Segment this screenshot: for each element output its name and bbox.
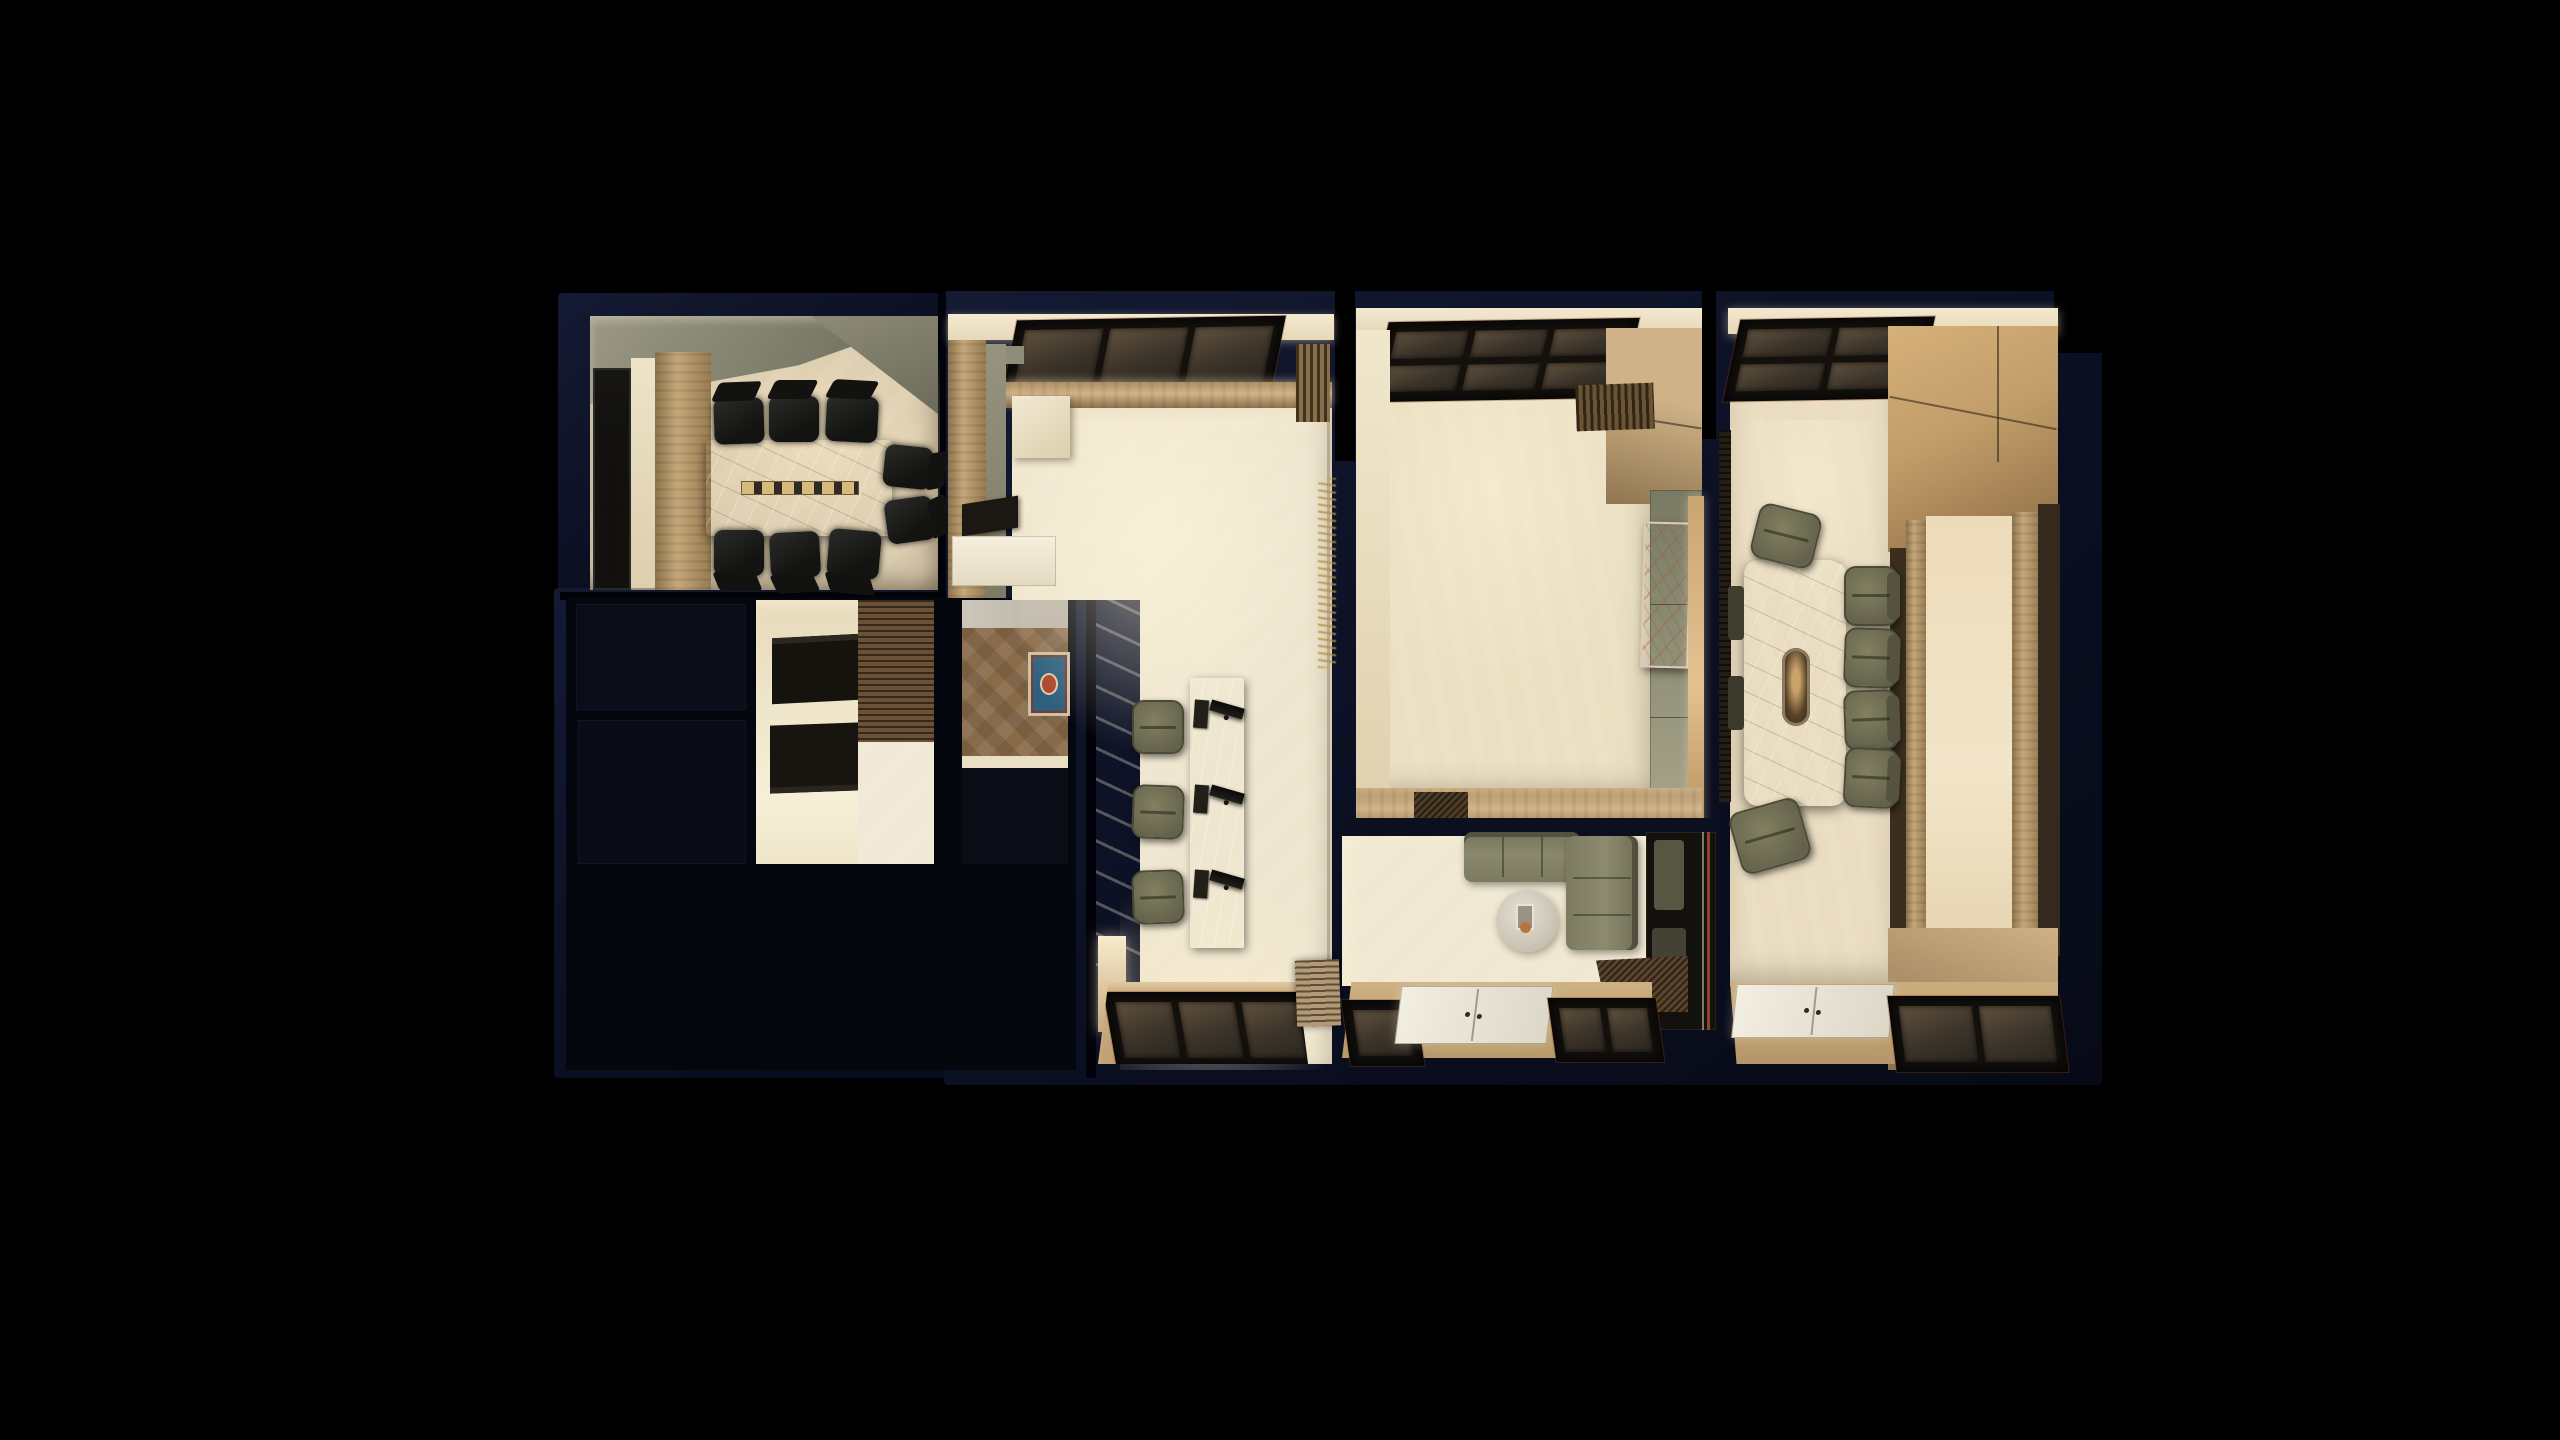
prayer-rug bbox=[1028, 652, 1070, 716]
executive-table bbox=[1744, 560, 1846, 806]
skylight-pane bbox=[1742, 328, 1832, 357]
office-chair bbox=[825, 395, 879, 444]
skylight-executive-south bbox=[1890, 998, 2067, 1070]
task-chair-partial bbox=[1728, 586, 1744, 640]
office-chair bbox=[714, 530, 764, 576]
unlit-room-a bbox=[576, 604, 746, 710]
slatted-screen bbox=[858, 600, 934, 742]
slatted-bench bbox=[1414, 792, 1468, 820]
skylight-pane bbox=[1470, 329, 1548, 357]
task-chair-partial bbox=[1728, 676, 1744, 730]
storage-room-floor bbox=[858, 742, 934, 864]
slat-baffle bbox=[1575, 383, 1655, 432]
sofa-vertical bbox=[1566, 836, 1638, 950]
skylight-pane bbox=[1559, 1008, 1606, 1052]
cushion-seam bbox=[1573, 877, 1631, 879]
keyboard bbox=[1193, 870, 1209, 899]
wood-strip bbox=[1906, 520, 1926, 940]
lit-wood-sliver bbox=[1688, 496, 1704, 834]
wood-wall-panel bbox=[655, 352, 711, 590]
skylight-border bbox=[1098, 982, 1308, 1064]
skylight-pane bbox=[1185, 326, 1274, 383]
corner-cabinet bbox=[1012, 396, 1070, 458]
office-chair bbox=[769, 396, 819, 442]
slatted-walkway bbox=[1295, 959, 1341, 1026]
skylight-pane bbox=[1383, 364, 1461, 392]
low-cabinet bbox=[952, 536, 1056, 586]
skylight-entry bbox=[1550, 1000, 1662, 1060]
skylight-pane bbox=[1178, 1002, 1244, 1058]
wall-notch bbox=[1702, 291, 1716, 439]
keyboard bbox=[1193, 785, 1209, 814]
unlit-room-c bbox=[962, 768, 1068, 864]
office-chair bbox=[713, 397, 765, 445]
prayer-rug-medallion bbox=[1042, 675, 1056, 694]
cream-inset-panel bbox=[1926, 516, 2014, 940]
wood-strip bbox=[2012, 512, 2040, 940]
display-case bbox=[593, 368, 631, 590]
tray-item bbox=[1520, 922, 1531, 933]
skylight-pane bbox=[1390, 331, 1468, 359]
mirror-seam bbox=[1702, 832, 1704, 1030]
sofa-horizontal bbox=[1464, 832, 1580, 882]
task-chair bbox=[1132, 700, 1184, 754]
skylight-pane bbox=[1606, 1008, 1653, 1052]
office-chair bbox=[882, 444, 934, 491]
entrance-door bbox=[1731, 984, 1895, 1038]
mirror-reflection bbox=[1654, 840, 1684, 910]
prayer-room-threshold bbox=[962, 600, 1068, 628]
task-chair bbox=[1844, 566, 1898, 626]
office-chair bbox=[826, 528, 882, 580]
task-chair bbox=[1843, 627, 1899, 689]
panel-seam bbox=[1889, 396, 2056, 430]
gold-branch-screen bbox=[1318, 478, 1336, 668]
wall-niche bbox=[772, 634, 860, 705]
marble-artwork bbox=[1640, 521, 1692, 668]
tambour-panel bbox=[1296, 344, 1330, 422]
task-chair bbox=[1131, 869, 1185, 925]
task-chair bbox=[1842, 747, 1899, 810]
wall-strip-cream bbox=[631, 358, 655, 588]
table-light-cove bbox=[1782, 648, 1810, 726]
unlit-room-b bbox=[578, 720, 746, 864]
panel-seam bbox=[1997, 326, 1999, 462]
skylight-pane bbox=[1099, 327, 1188, 384]
office-chair bbox=[769, 531, 821, 580]
office-chair bbox=[883, 495, 937, 545]
wall-notch bbox=[1335, 291, 1355, 461]
skylight-pane bbox=[1978, 1006, 2057, 1062]
table-power-strip bbox=[742, 482, 858, 494]
wall-strip-cream bbox=[1356, 330, 1390, 792]
skylight-pane bbox=[1899, 1006, 1978, 1062]
entrance-door bbox=[1394, 986, 1553, 1044]
wall-niche bbox=[770, 722, 860, 793]
coffee-table bbox=[1496, 890, 1558, 952]
task-chair bbox=[1843, 689, 1899, 751]
wall-notch bbox=[2054, 291, 2102, 353]
cushion-seam bbox=[1502, 837, 1504, 877]
wall-seam bbox=[1086, 600, 1096, 1078]
skylight-pane bbox=[1735, 363, 1825, 392]
mirror-seam bbox=[1707, 832, 1710, 1030]
skylight-reception-south bbox=[1106, 994, 1317, 1066]
cushion-seam bbox=[1541, 837, 1543, 877]
task-chair bbox=[1131, 784, 1185, 840]
cushion-seam bbox=[1573, 914, 1631, 916]
skylight-pane bbox=[1115, 1002, 1181, 1058]
keyboard bbox=[1193, 700, 1209, 729]
wall-seam bbox=[938, 293, 946, 600]
floor-plan-scene bbox=[0, 0, 2560, 1440]
skylight-pane bbox=[1014, 329, 1103, 386]
prayer-room-edge bbox=[962, 756, 1068, 768]
dark-fabric-strip bbox=[2038, 504, 2060, 956]
skylight-pane bbox=[1462, 363, 1540, 391]
